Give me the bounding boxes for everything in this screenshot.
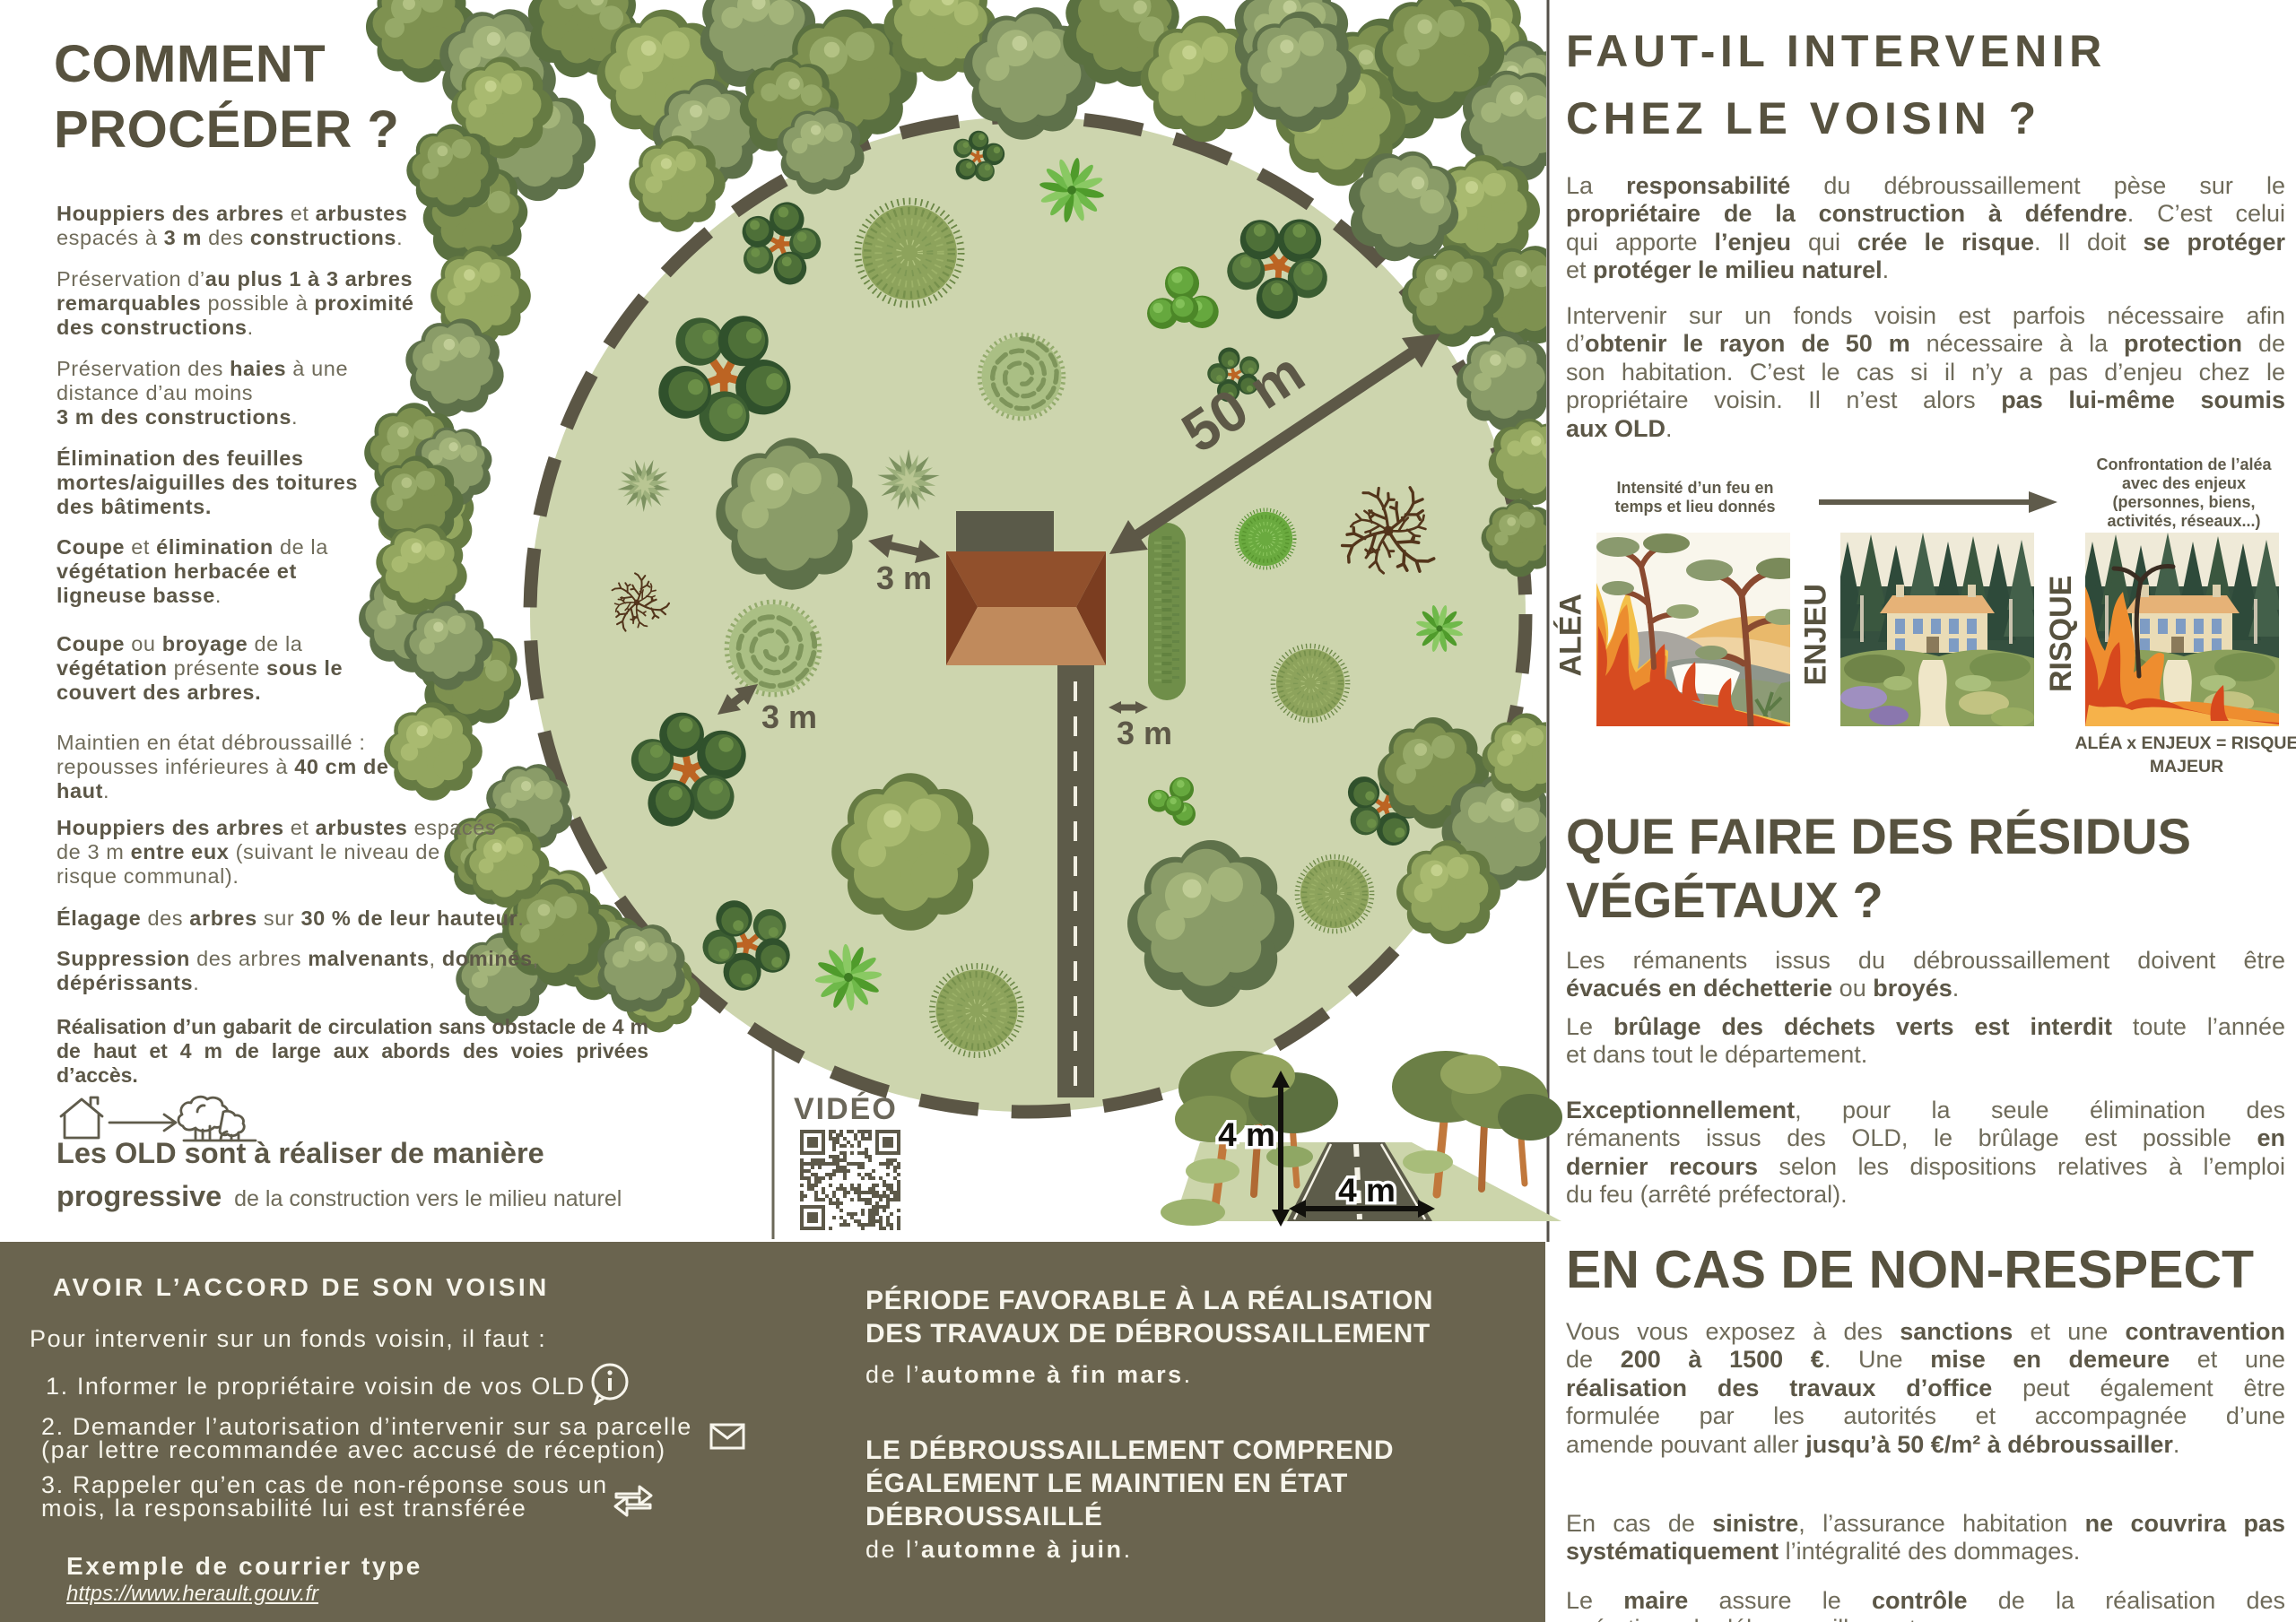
svg-text:4 m: 4 m <box>1218 1116 1275 1153</box>
svg-text:3 m: 3 m <box>761 698 817 735</box>
svg-text:3 m: 3 m <box>1117 715 1172 751</box>
svg-text:4 m: 4 m <box>1338 1172 1396 1209</box>
svg-text:3 m: 3 m <box>876 559 932 596</box>
